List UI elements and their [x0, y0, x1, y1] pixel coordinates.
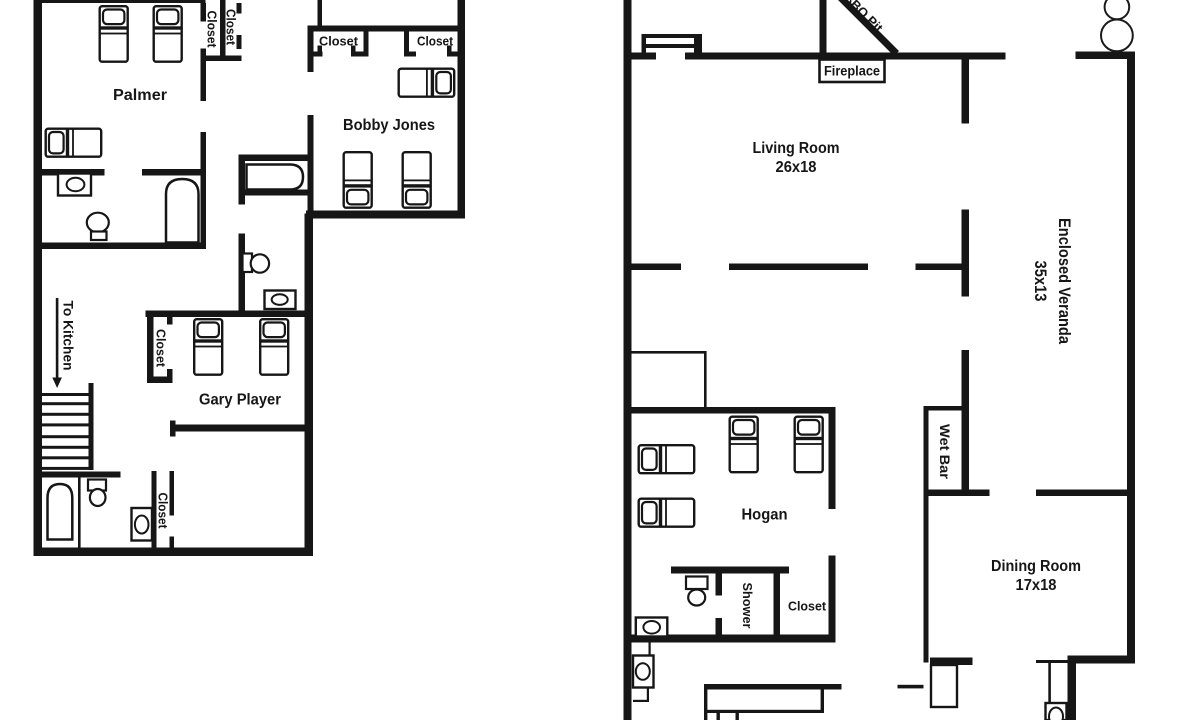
svg-text:Hogan: Hogan: [742, 507, 788, 524]
svg-text:Closet: Closet: [788, 599, 827, 614]
svg-text:Shower: Shower: [740, 583, 755, 629]
svg-text:Closet: Closet: [417, 34, 454, 49]
svg-text:17x18: 17x18: [1016, 577, 1057, 594]
svg-text:Living Room: Living Room: [753, 140, 840, 157]
svg-text:Closet: Closet: [156, 493, 170, 530]
svg-text:Closet: Closet: [154, 329, 168, 368]
svg-text:To Kitchen: To Kitchen: [60, 301, 76, 371]
svg-text:Wet Bar: Wet Bar: [937, 424, 953, 480]
svg-text:Closet: Closet: [319, 34, 359, 49]
svg-text:Closet: Closet: [224, 9, 238, 46]
svg-text:Fireplace: Fireplace: [824, 64, 880, 79]
svg-text:Dining Room: Dining Room: [991, 558, 1081, 575]
svg-text:35x13: 35x13: [1031, 261, 1049, 302]
svg-text:Enclosed Veranda: Enclosed Veranda: [1055, 218, 1073, 345]
svg-text:Palmer: Palmer: [113, 87, 167, 104]
svg-text:26x18: 26x18: [776, 159, 817, 176]
svg-text:Gary Player: Gary Player: [199, 392, 281, 409]
svg-text:Bobby Jones: Bobby Jones: [343, 117, 435, 134]
svg-text:Closet: Closet: [205, 11, 219, 49]
